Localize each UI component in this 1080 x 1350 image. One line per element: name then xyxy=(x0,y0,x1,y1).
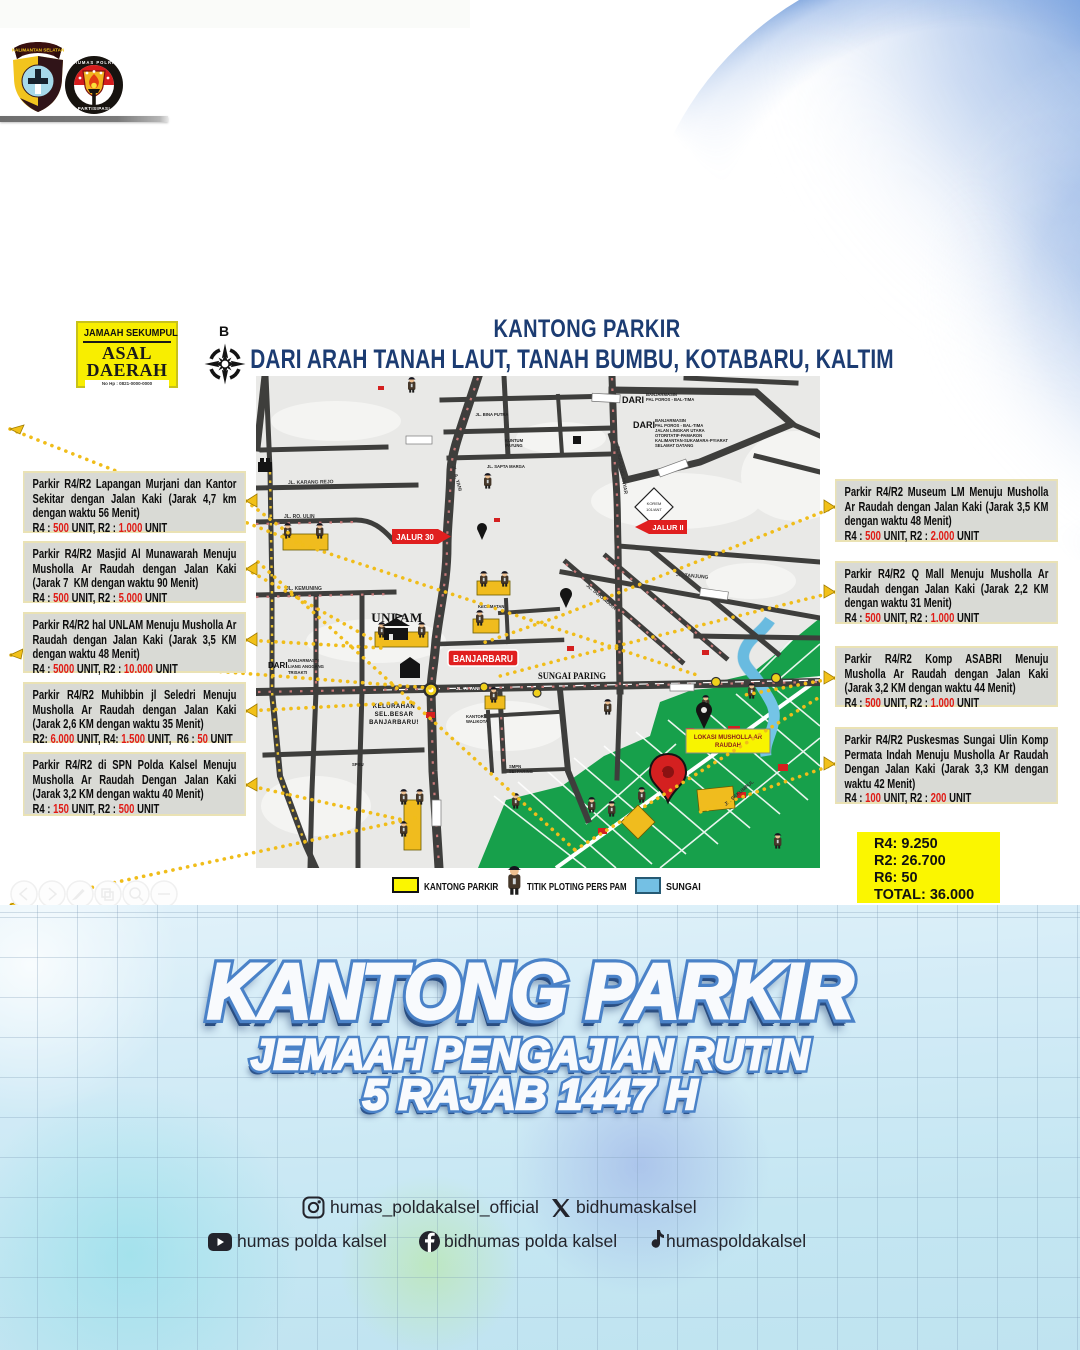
svg-text:KALIMANTAN SELATAN: KALIMANTAN SELATAN xyxy=(12,48,65,53)
svg-text:PARTISIPASI: PARTISIPASI xyxy=(78,106,110,111)
svg-text:HUMAS POLRI: HUMAS POLRI xyxy=(74,60,114,65)
